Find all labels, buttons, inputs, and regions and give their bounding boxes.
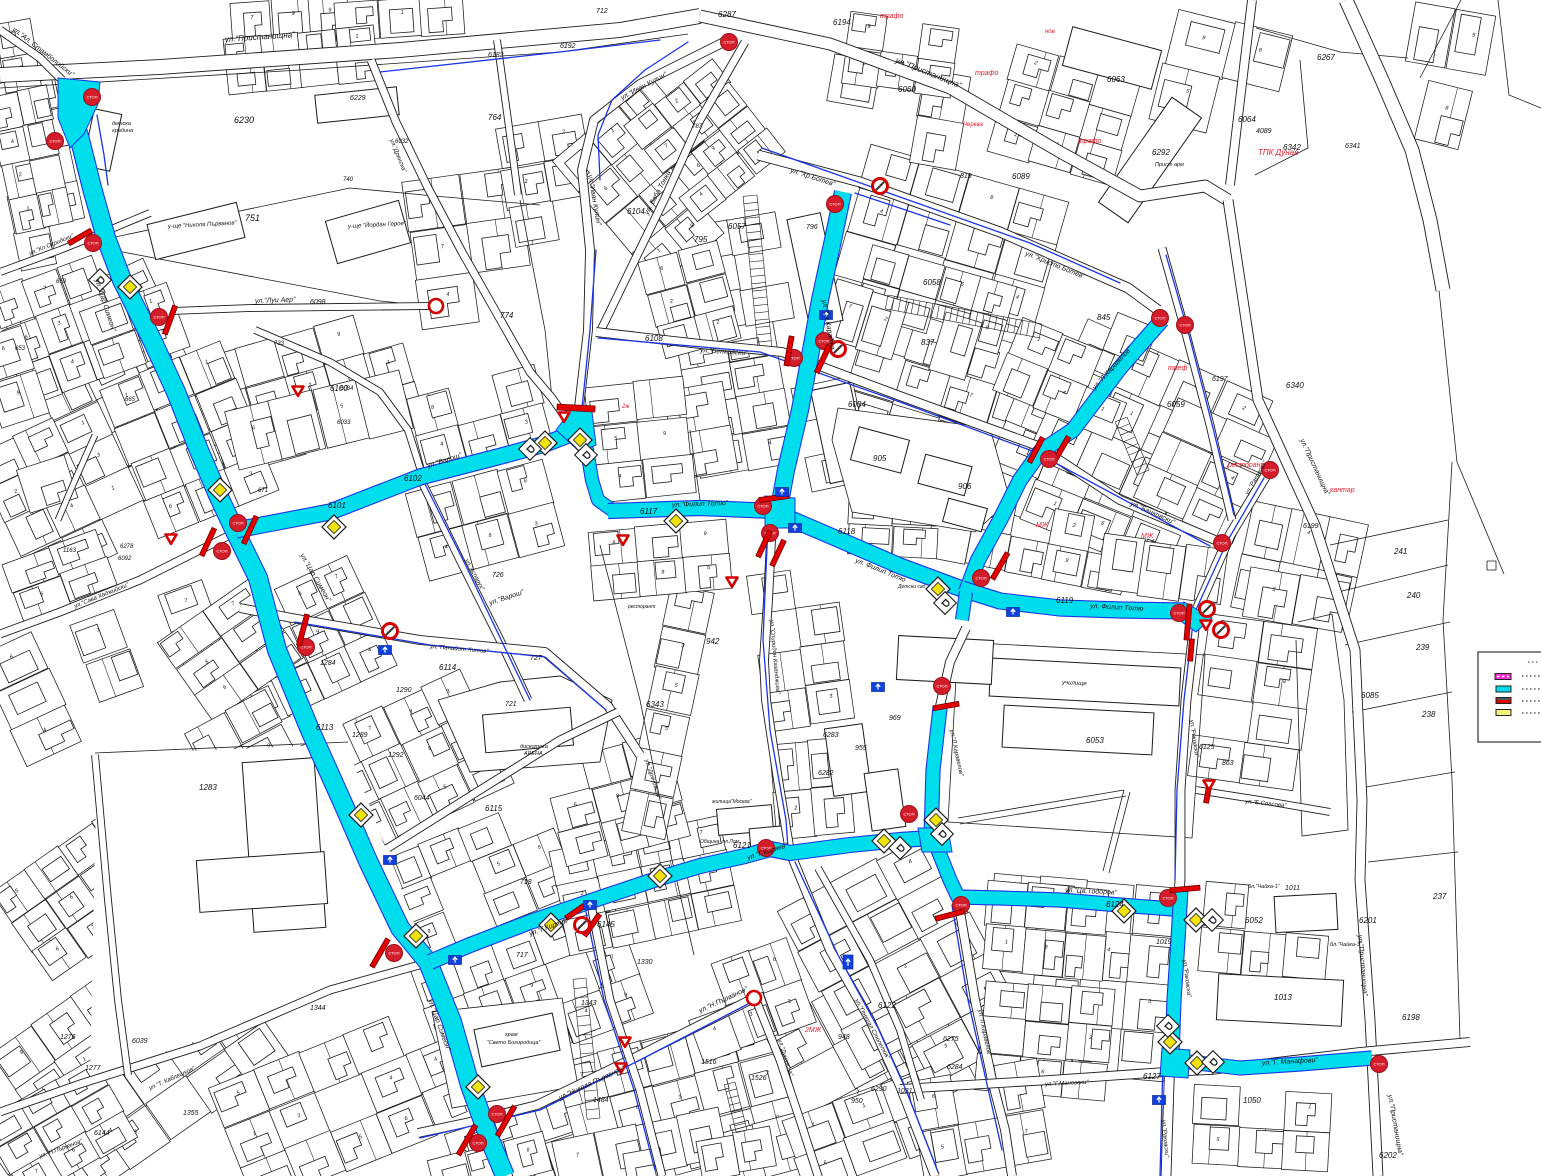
svg-text:6034: 6034 — [340, 386, 354, 392]
svg-text:665: 665 — [125, 397, 136, 403]
svg-text:2: 2 — [1088, 1035, 1093, 1041]
svg-text:6199: 6199 — [1303, 523, 1319, 530]
svg-text:6057: 6057 — [728, 222, 746, 231]
svg-text:1: 1 — [1308, 1104, 1311, 1110]
svg-text:6125: 6125 — [1199, 744, 1215, 751]
svg-text:6032: 6032 — [395, 139, 409, 145]
svg-text:721: 721 — [505, 701, 517, 708]
svg-text:6341: 6341 — [1345, 143, 1361, 150]
svg-text:671: 671 — [258, 488, 268, 494]
svg-text:1277: 1277 — [85, 1065, 102, 1072]
svg-text:863: 863 — [1222, 760, 1234, 767]
svg-text:6114: 6114 — [439, 663, 457, 672]
svg-text:6292: 6292 — [1152, 148, 1170, 157]
svg-text:градина: градина — [112, 128, 133, 134]
svg-text:2МЖ: 2МЖ — [804, 1027, 822, 1034]
svg-text:6282: 6282 — [818, 770, 834, 777]
svg-text:6340: 6340 — [1286, 381, 1304, 390]
svg-text:727: 727 — [530, 655, 543, 662]
svg-text:6039: 6039 — [132, 1038, 148, 1045]
svg-text:СТОП: СТОП — [936, 684, 947, 689]
svg-text:1355: 1355 — [183, 1110, 199, 1117]
svg-text:МЖ: МЖ — [1141, 533, 1154, 540]
svg-text:6119: 6119 — [1056, 596, 1074, 605]
svg-text:6182: 6182 — [488, 52, 504, 59]
svg-text:1344: 1344 — [310, 1005, 326, 1012]
svg-text:СТОП: СТОП — [903, 812, 914, 817]
svg-text:6122: 6122 — [878, 1001, 896, 1010]
svg-text:6278: 6278 — [120, 544, 134, 550]
svg-text:955: 955 — [855, 745, 867, 752]
svg-text:1: 1 — [400, 10, 403, 16]
svg-text:6283: 6283 — [823, 732, 839, 739]
svg-text:СТОП: СТОП — [153, 315, 164, 320]
svg-text:1283: 1283 — [199, 783, 217, 792]
svg-text:6194: 6194 — [833, 18, 851, 27]
svg-text:751: 751 — [245, 213, 260, 223]
svg-text:6104: 6104 — [627, 207, 645, 216]
svg-text:969: 969 — [889, 715, 901, 722]
svg-text:837: 837 — [921, 338, 935, 347]
svg-text:бл.”Чайка-3”: бл.”Чайка-3” — [1330, 941, 1363, 948]
svg-text:Черква: Черква — [963, 122, 984, 128]
svg-text:6108: 6108 — [645, 334, 663, 343]
svg-text:659: 659 — [56, 279, 67, 285]
svg-text:Детски сад: Детски сад — [897, 584, 926, 590]
svg-text:774: 774 — [500, 311, 514, 320]
svg-text:СТОП: СТОП — [1043, 457, 1054, 462]
svg-text:9: 9 — [328, 7, 331, 13]
svg-text:храм: храм — [504, 1032, 518, 1038]
svg-text:трафо: трафо — [975, 70, 998, 77]
svg-text:6092: 6092 — [118, 556, 132, 562]
svg-text:819: 819 — [960, 173, 972, 180]
svg-text:6058: 6058 — [923, 278, 941, 287]
svg-text:трафо: трафо — [1078, 138, 1101, 145]
svg-text:6267: 6267 — [1317, 53, 1335, 62]
svg-text:1289: 1289 — [352, 732, 368, 739]
svg-text:712: 712 — [596, 8, 608, 15]
svg-text:СТОП: СТОП — [1373, 1062, 1384, 1067]
svg-text:6060: 6060 — [898, 85, 916, 94]
svg-text:6102: 6102 — [404, 474, 422, 483]
svg-text:4089: 4089 — [1256, 128, 1272, 135]
svg-text:1013: 1013 — [1274, 993, 1292, 1002]
svg-text:1011: 1011 — [1285, 885, 1300, 892]
svg-text:детска: детска — [112, 121, 131, 127]
svg-text:СТОП: СТОП — [232, 521, 243, 526]
svg-text:СТОП: СТОП — [388, 951, 399, 956]
svg-text:726: 726 — [492, 572, 504, 579]
svg-text:740: 740 — [343, 177, 354, 183]
svg-text:905: 905 — [873, 454, 887, 463]
svg-text:1050: 1050 — [1243, 1096, 1261, 1105]
svg-text:СТОП: СТОП — [757, 504, 768, 509]
svg-text:треф: треф — [1168, 365, 1187, 372]
svg-text:241: 241 — [1393, 547, 1407, 556]
svg-text:6054: 6054 — [848, 400, 866, 409]
svg-text:6064: 6064 — [1238, 115, 1256, 124]
svg-text:950: 950 — [851, 1098, 863, 1105]
svg-text:6117: 6117 — [640, 507, 658, 516]
svg-text:СТОП: СТОП — [723, 40, 734, 45]
svg-text:СТОП: СТОП — [49, 139, 60, 144]
svg-text:942: 942 — [706, 637, 720, 646]
svg-text:6343: 6343 — [646, 700, 664, 709]
svg-text:СТОП: СТОП — [491, 1112, 502, 1117]
svg-text:трафо: трафо — [880, 13, 903, 20]
svg-text:6229: 6229 — [350, 95, 366, 102]
svg-text:2: 2 — [793, 805, 798, 811]
svg-text:СТОП: СТОП — [1154, 316, 1165, 321]
svg-text:СТОП: СТОП — [86, 95, 97, 100]
svg-text:дискотека: дискотека — [520, 744, 548, 750]
svg-text:1526: 1526 — [751, 1075, 767, 1082]
svg-text:1516: 1516 — [701, 1059, 717, 1066]
svg-text:6127: 6127 — [1143, 1072, 1161, 1081]
svg-text:МЖ: МЖ — [1036, 522, 1049, 529]
svg-text:СТОП: СТОП — [472, 1141, 483, 1146]
svg-text:6089: 6089 — [1012, 172, 1030, 181]
svg-text:237: 237 — [1432, 892, 1447, 901]
svg-text:ресторант: ресторант — [627, 604, 655, 610]
svg-text:СТОП: СТОП — [955, 903, 966, 908]
svg-text:1019: 1019 — [1156, 939, 1172, 946]
svg-text:795: 795 — [694, 235, 708, 244]
svg-text:1330: 1330 — [637, 959, 653, 966]
svg-text:СТОП: СТОП — [1179, 323, 1190, 328]
svg-text:9: 9 — [291, 11, 294, 17]
svg-text:Община- пл.Лом: Община- пл.Лом — [700, 839, 739, 845]
svg-text:СТОП: СТОП — [975, 576, 986, 581]
svg-text:733: 733 — [274, 341, 285, 347]
svg-text:1031: 1031 — [897, 1088, 913, 1095]
svg-text:6101: 6101 — [328, 501, 346, 510]
svg-text:240: 240 — [1406, 591, 1421, 600]
svg-text:1163: 1163 — [63, 548, 77, 554]
svg-text:ТПК Дунав: ТПК Дунав — [1258, 148, 1298, 157]
svg-text:жилища”Москва”: жилища”Москва” — [711, 799, 752, 805]
svg-text:796: 796 — [806, 224, 818, 231]
svg-text:6053: 6053 — [1086, 736, 1104, 745]
svg-text:1276: 1276 — [60, 1034, 76, 1041]
svg-text:6044: 6044 — [414, 795, 430, 802]
svg-text:6059: 6059 — [1167, 400, 1185, 409]
svg-text:бл.”Чайка-1”: бл.”Чайка-1” — [1248, 883, 1281, 890]
svg-text:6118: 6118 — [838, 527, 856, 536]
svg-text:6113: 6113 — [316, 723, 334, 732]
svg-text:239: 239 — [1415, 643, 1430, 652]
svg-text:СТОП: СТОП — [1162, 896, 1173, 901]
svg-text:1: 1 — [1005, 939, 1009, 945]
svg-text:9: 9 — [663, 431, 667, 437]
svg-text:845: 845 — [1097, 313, 1111, 322]
svg-text:6052: 6052 — [1245, 916, 1263, 925]
svg-text:238: 238 — [1421, 710, 1436, 719]
svg-text:6230: 6230 — [234, 115, 254, 125]
svg-text:Прист арм: Прист арм — [1155, 162, 1184, 168]
svg-text:6198: 6198 — [1402, 1013, 1420, 1022]
svg-text:6144: 6144 — [94, 1130, 110, 1137]
svg-text:2ж: 2ж — [621, 404, 630, 410]
svg-text:6275: 6275 — [943, 1036, 959, 1043]
svg-text:717: 717 — [516, 952, 529, 959]
svg-text:6192: 6192 — [560, 43, 576, 50]
svg-text:718: 718 — [520, 879, 532, 886]
svg-text:нов: нов — [1045, 29, 1055, 35]
svg-text:6201: 6201 — [1359, 916, 1377, 925]
svg-text:948: 948 — [838, 1034, 850, 1041]
svg-text:653: 653 — [15, 346, 26, 352]
svg-text:ул.”Луи Аер”: ул.”Луи Аер” — [254, 297, 296, 305]
svg-text:764: 764 — [488, 113, 502, 122]
svg-text:6290: 6290 — [871, 1086, 887, 1093]
svg-text:ресторант: ресторант — [1227, 462, 1266, 469]
svg-text:6033: 6033 — [337, 420, 351, 426]
svg-text:1: 1 — [355, 34, 359, 40]
svg-text:6063: 6063 — [1107, 75, 1125, 84]
svg-text:1484: 1484 — [593, 1097, 609, 1104]
svg-text:6085: 6085 — [1361, 691, 1379, 700]
svg-text:6145: 6145 — [597, 920, 615, 929]
svg-text:кантар: кантар — [1330, 487, 1355, 494]
svg-text:1343: 1343 — [581, 1000, 597, 1007]
svg-text:6115: 6115 — [485, 804, 503, 813]
svg-text:”Свето Богородица”: ”Свето Богородица” — [487, 1040, 541, 1046]
svg-text:СТОП: СТОП — [1216, 541, 1227, 546]
svg-text:4: 4 — [1107, 947, 1111, 953]
svg-text:СТОП: СТОП — [300, 645, 311, 650]
svg-text:СТОП: СТОП — [1173, 611, 1184, 616]
svg-text:СТОП: СТОП — [87, 241, 98, 246]
svg-text:6197: 6197 — [1212, 376, 1229, 383]
svg-text:АРЕНА: АРЕНА — [523, 751, 543, 757]
svg-text:9: 9 — [703, 531, 707, 537]
svg-text:1290: 1290 — [396, 687, 412, 694]
svg-text:787: 787 — [692, 124, 703, 130]
svg-text:СТОП: СТОП — [216, 549, 227, 554]
svg-text:6202: 6202 — [1379, 1151, 1397, 1160]
svg-text:1292: 1292 — [388, 752, 404, 759]
svg-text:906: 906 — [958, 482, 972, 491]
svg-text:6098: 6098 — [310, 299, 326, 306]
svg-text:6284: 6284 — [947, 1064, 963, 1071]
svg-text:СТОП: СТОП — [829, 202, 840, 207]
svg-text:1284: 1284 — [320, 660, 336, 667]
svg-text:4: 4 — [618, 474, 622, 480]
svg-text:6124: 6124 — [1106, 900, 1124, 909]
svg-text:6287: 6287 — [718, 10, 736, 19]
